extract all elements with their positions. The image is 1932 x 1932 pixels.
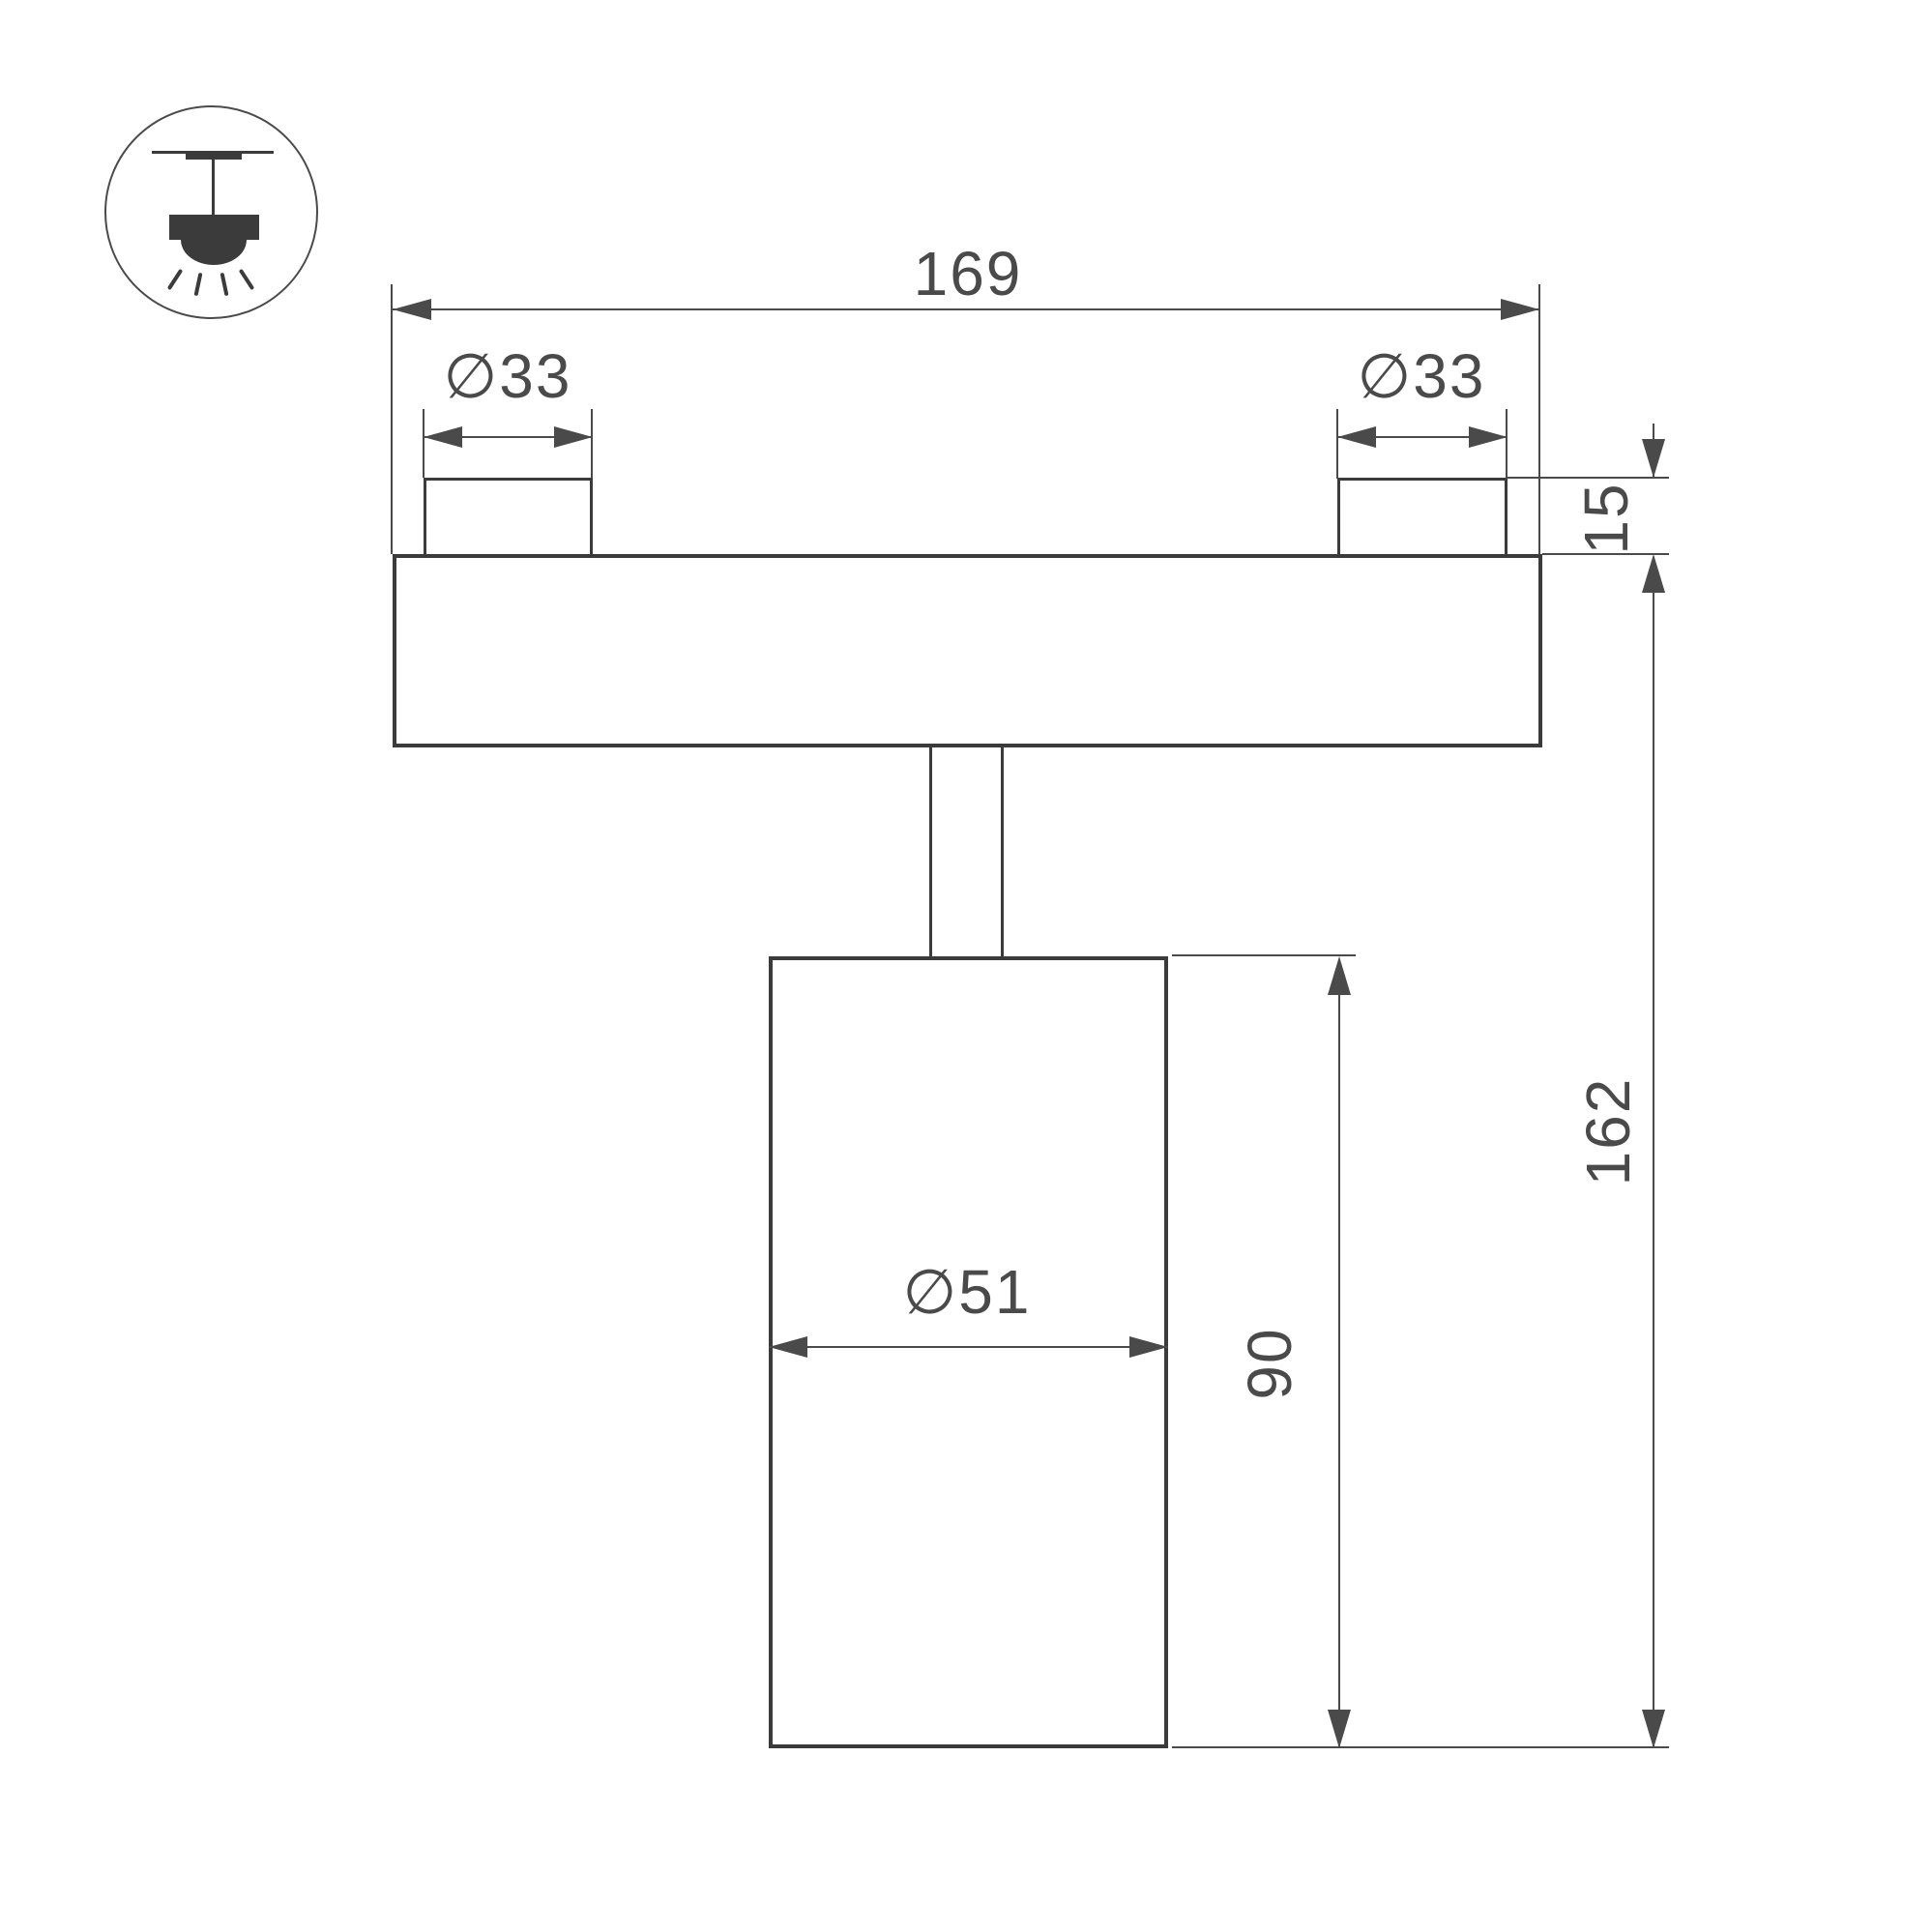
dim-162-line	[1653, 558, 1654, 1748]
dim-33R-arrow-left-icon	[1337, 426, 1376, 448]
right-boss-outline	[1337, 478, 1508, 555]
dim-33R-arrow-right-icon	[1469, 426, 1508, 448]
dim-33L-label: ∅33	[444, 345, 572, 407]
dim-33L-arrow-right-icon	[554, 426, 593, 448]
pictogram-lamp-body	[169, 215, 259, 240]
stem-left-edge	[929, 747, 932, 958]
dim-90-arrow-down-icon	[1328, 1710, 1351, 1748]
dim-169-line	[393, 308, 1539, 310]
stem-right-edge	[1001, 747, 1004, 958]
dim-169-label: 169	[914, 243, 1023, 305]
dim-90-label: 90	[1239, 1327, 1301, 1399]
dim-15-arrow-down-icon	[1642, 439, 1665, 478]
dim-162-arrow-up-icon	[1642, 554, 1665, 593]
dim-51-arrow-left-icon	[769, 1336, 807, 1358]
dim-33R-label: ∅33	[1358, 345, 1486, 407]
dim-33L-arrow-left-icon	[424, 426, 462, 448]
dim-162-arrow-down-icon	[1642, 1710, 1665, 1748]
dim-169-extension-left	[391, 284, 393, 554]
dim-90-line	[1338, 960, 1340, 1748]
dim-90-arrow-up-icon	[1328, 956, 1351, 995]
pictogram-stem	[212, 157, 215, 216]
technical-drawing-canvas: 169 ∅33 ∅33 15 162 90	[0, 0, 1932, 1932]
dim-162-label: 162	[1577, 1077, 1639, 1186]
dim-15-label: 15	[1575, 482, 1637, 554]
dim-51-line	[769, 1346, 1168, 1348]
left-boss-outline	[424, 478, 593, 555]
cylinder-body-outline	[769, 956, 1168, 1748]
dim-169-extension-right	[1538, 284, 1540, 554]
dim-51-label: ∅51	[903, 1261, 1032, 1323]
dim-169-arrow-right-icon	[1501, 299, 1539, 320]
dim-169-arrow-left-icon	[393, 299, 431, 320]
track-plate-outline	[393, 554, 1542, 747]
extension-cylinder-bottom	[1172, 1746, 1669, 1748]
dim-51-arrow-right-icon	[1129, 1336, 1168, 1358]
